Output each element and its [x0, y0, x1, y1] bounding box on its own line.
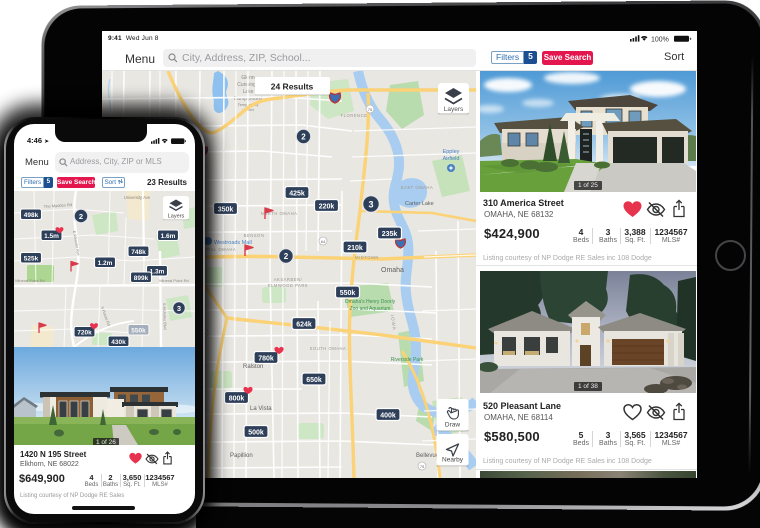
svg-text:525k: 525k	[24, 256, 39, 263]
svg-text:Nearby: Nearby	[442, 457, 464, 464]
svg-text:425k: 425k	[289, 191, 305, 198]
svg-text:650k: 650k	[306, 377, 322, 384]
svg-text:498k: 498k	[24, 212, 39, 219]
svg-text:BENSON: BENSON	[244, 233, 265, 238]
svg-text:75: 75	[368, 107, 373, 112]
svg-text:Eppley: Eppley	[443, 149, 460, 155]
svg-text:1.2m: 1.2m	[98, 260, 113, 267]
svg-text:3: 3	[368, 200, 373, 210]
svg-text:64: 64	[321, 239, 326, 244]
svg-text:AKSARBEN/: AKSARBEN/	[274, 277, 303, 282]
svg-text:400k: 400k	[380, 413, 396, 420]
svg-text:EAST OMAHA: EAST OMAHA	[401, 185, 433, 190]
svg-text:Bellevue: Bellevue	[416, 453, 440, 459]
svg-text:210k: 210k	[347, 245, 363, 252]
svg-text:500k: 500k	[248, 430, 264, 437]
svg-text:75: 75	[420, 464, 425, 469]
svg-text:Layers: Layers	[444, 106, 464, 113]
svg-text:24 Results: 24 Results	[271, 82, 314, 92]
svg-text:624k: 624k	[296, 322, 312, 329]
svg-text:3: 3	[177, 304, 181, 313]
svg-text:Carter Lake: Carter Lake	[405, 201, 434, 207]
svg-text:800k: 800k	[229, 396, 245, 403]
svg-text:University Ave: University Ave	[124, 195, 151, 200]
svg-text:MIDTOWN: MIDTOWN	[355, 255, 379, 260]
svg-text:Airfield: Airfield	[443, 156, 460, 162]
svg-text:La Vista: La Vista	[250, 406, 272, 412]
svg-text:550k: 550k	[131, 328, 146, 335]
svg-text:220k: 220k	[319, 204, 335, 211]
svg-text:SOUTH OMAHA: SOUTH OMAHA	[310, 346, 347, 351]
svg-text:1.6m: 1.6m	[161, 233, 176, 240]
svg-text:235k: 235k	[382, 231, 398, 238]
svg-text:430k: 430k	[111, 339, 126, 346]
svg-text:748k: 748k	[131, 249, 146, 256]
svg-text:2: 2	[284, 252, 289, 261]
svg-text:780k: 780k	[258, 356, 274, 363]
svg-text:2: 2	[79, 212, 83, 221]
svg-text:100%: 100%	[651, 36, 669, 43]
svg-text:Ralston: Ralston	[243, 364, 263, 370]
svg-text:Riverside Park: Riverside Park	[391, 357, 424, 363]
svg-text:Mineral Point Rd: Mineral Point Rd	[15, 278, 45, 283]
svg-text:Papillion: Papillion	[230, 453, 253, 459]
svg-text:350k: 350k	[218, 207, 234, 214]
svg-text:550k: 550k	[340, 290, 356, 297]
svg-text:720k: 720k	[77, 330, 92, 337]
svg-text:ELMWOOD PARK: ELMWOOD PARK	[268, 283, 308, 288]
svg-text:899k: 899k	[134, 275, 149, 282]
svg-text:FLORENCE: FLORENCE	[341, 113, 368, 118]
svg-text:Mineral Point Rd: Mineral Point Rd	[159, 278, 189, 283]
svg-text:Zoo and Aquarium: Zoo and Aquarium	[350, 306, 391, 312]
svg-text:Omaha's Henry Doorly: Omaha's Henry Doorly	[345, 299, 396, 305]
svg-text:2: 2	[301, 133, 306, 142]
svg-text:Draw: Draw	[445, 422, 460, 429]
svg-text:1.5m: 1.5m	[44, 233, 59, 240]
svg-text:Layers: Layers	[168, 214, 185, 220]
svg-text:Omaha: Omaha	[381, 267, 404, 274]
